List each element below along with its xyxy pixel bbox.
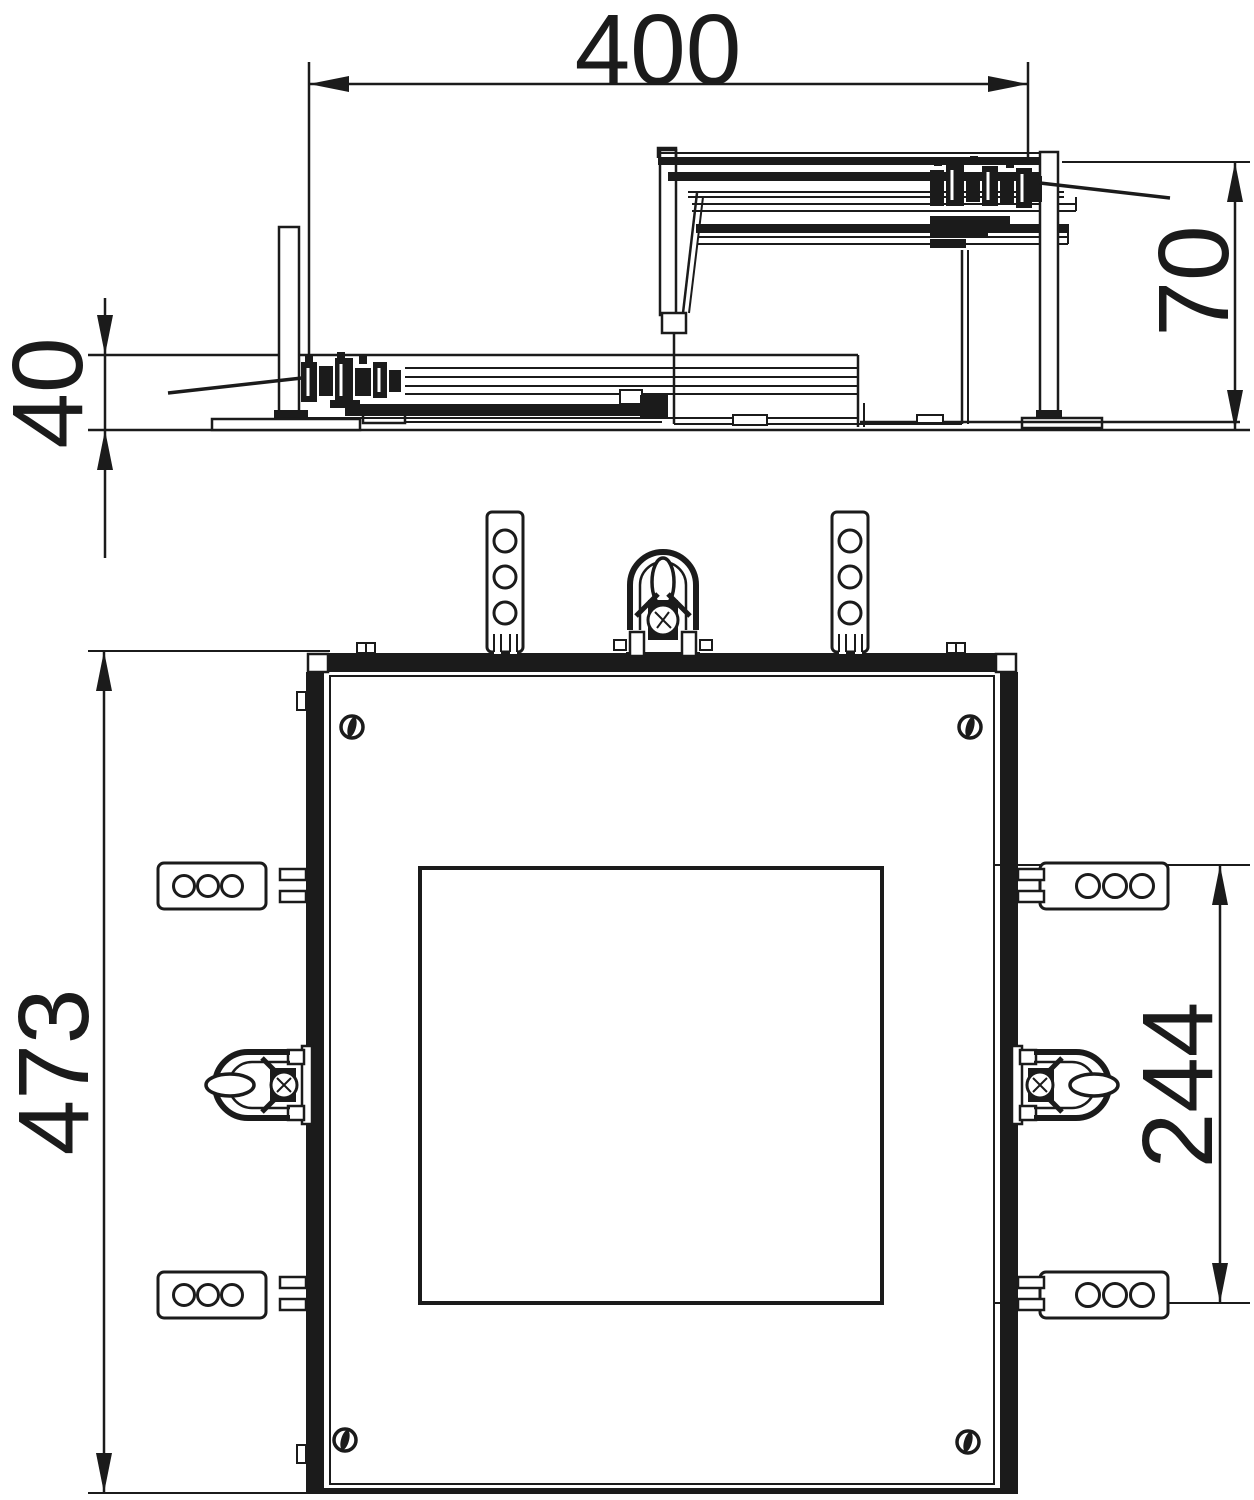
frame-tab-left-top bbox=[297, 692, 306, 710]
plan-view: 473 244 bbox=[0, 512, 1250, 1494]
arrowhead-up bbox=[1227, 162, 1243, 202]
mounting-bracket-left-upper bbox=[158, 863, 306, 909]
frame-tab-left-bottom bbox=[297, 1445, 306, 1463]
mounting-bracket-left-lower bbox=[158, 1272, 306, 1318]
dim-length-473: 473 bbox=[0, 651, 112, 1493]
arrowhead-down bbox=[96, 1453, 112, 1493]
lifting-handle-right bbox=[1012, 1046, 1118, 1124]
mounting-bracket-right-upper bbox=[1018, 863, 1168, 909]
dim-height-70: 70 bbox=[1062, 162, 1250, 430]
arrowhead-up bbox=[96, 651, 112, 691]
side-section-view: 400 70 40 bbox=[0, 0, 1250, 558]
technical-drawing-page: 400 70 40 bbox=[0, 0, 1254, 1500]
left-clamp-mechanism bbox=[301, 352, 401, 408]
screw-top-left bbox=[341, 716, 363, 738]
right-clamp-lever bbox=[1040, 183, 1170, 198]
screw-bottom-left bbox=[334, 1429, 356, 1451]
screw-bottom-right bbox=[957, 1431, 979, 1453]
lifting-handle-top bbox=[614, 552, 712, 658]
dim-width-400-label: 400 bbox=[575, 0, 742, 106]
right-clamp-mechanism bbox=[930, 156, 1042, 248]
mounting-bracket-right-lower bbox=[1018, 1272, 1168, 1318]
mounting-bracket-top-left bbox=[487, 512, 523, 654]
frame-clip-top-right bbox=[947, 643, 965, 653]
dim-height-40: 40 bbox=[0, 298, 113, 558]
frame-clip-top-left bbox=[357, 643, 375, 653]
lifting-handle-left bbox=[206, 1046, 312, 1124]
frame-corner-right bbox=[996, 654, 1016, 672]
dim-cutout-244-label: 244 bbox=[1122, 1002, 1234, 1169]
screw-top-right bbox=[959, 716, 981, 738]
arrowhead-down bbox=[1212, 1263, 1228, 1303]
arrowhead-up bbox=[1212, 865, 1228, 905]
arrowhead-left bbox=[309, 76, 349, 92]
center-riser bbox=[658, 148, 703, 424]
mounting-bracket-top-right bbox=[832, 512, 868, 654]
dim-height-70-label: 70 bbox=[1138, 225, 1250, 336]
frame-corner-left bbox=[308, 654, 328, 672]
frame-bar-bottom bbox=[306, 1488, 1018, 1494]
dim-length-473-label: 473 bbox=[0, 989, 110, 1156]
inner-cutout bbox=[420, 868, 882, 1303]
arrowhead-down bbox=[1227, 390, 1243, 430]
dim-cutout-244: 244 bbox=[1122, 865, 1234, 1303]
technical-drawing: 400 70 40 bbox=[0, 0, 1254, 1500]
arrowhead-right bbox=[988, 76, 1028, 92]
